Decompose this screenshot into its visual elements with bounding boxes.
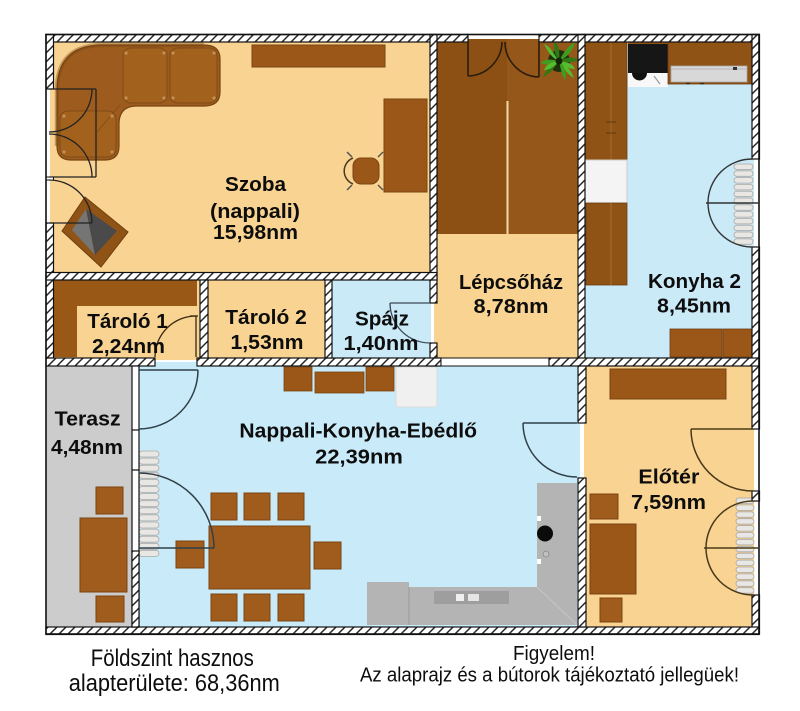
svg-text:alapterülete: 68,36nm: alapterülete: 68,36nm [69,670,280,697]
svg-text:2,24nm: 2,24nm [92,336,165,358]
svg-text:7,59nm: 7,59nm [631,492,706,514]
svg-text:Terasz: Terasz [55,409,121,431]
svg-text:Figyelem!: Figyelem! [513,643,595,665]
svg-text:1,53nm: 1,53nm [231,332,304,354]
svg-text:Az alaprajz és a bútorok tájék: Az alaprajz és a bútorok tájékoztató jel… [360,665,739,687]
svg-text:Tároló 2: Tároló 2 [225,307,307,329]
svg-text:4,48nm: 4,48nm [51,437,123,459]
svg-text:Tároló 1: Tároló 1 [87,311,168,333]
svg-text:8,45nm: 8,45nm [657,296,731,318]
svg-text:Konyha 2: Konyha 2 [648,271,741,293]
svg-text:22,39nm: 22,39nm [315,447,403,469]
svg-text:Spájz: Spájz [355,309,409,331]
svg-text:Nappali-Konyha-Ebédlő: Nappali-Konyha-Ebédlő [239,421,477,443]
svg-text:1,40nm: 1,40nm [344,333,419,355]
svg-text:8,78nm: 8,78nm [474,296,549,318]
svg-text:Szoba: Szoba [225,174,287,196]
svg-text:Előtér: Előtér [638,467,699,489]
svg-text:Földszint hasznos: Földszint hasznos [91,645,254,672]
svg-text:15,98nm: 15,98nm [213,222,298,244]
svg-text:(nappali): (nappali) [210,201,300,223]
svg-text:Lépcsőház: Lépcsőház [459,272,563,294]
